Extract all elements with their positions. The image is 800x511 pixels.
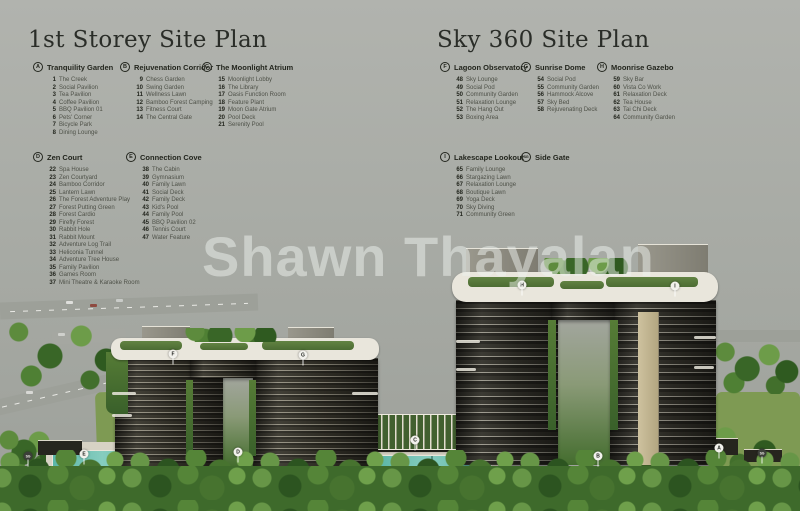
item-label: Social Pod [466,85,495,93]
item-label: Bamboo Corridor [59,182,105,190]
item-number: 14 [134,115,143,123]
item-number: 1 [47,77,56,85]
legend-item: 33Heliconia Tunnel [47,250,140,258]
item-number: 70 [454,205,463,213]
item-number: 60 [611,85,620,93]
item-label: Firefly Forest [59,220,94,228]
legend-item: 2Social Pavilion [47,85,113,93]
legend-item: 15Moonlight Lobby [216,77,293,85]
item-label: The Library [228,85,258,93]
item-number: 58 [535,107,544,115]
item-label: Relaxation Lounge [466,100,516,108]
legend-item: 35Family Pavilion [47,265,140,273]
legend-section-C: CThe Moonlight Atrium15Moonlight Lobby16… [202,62,293,130]
section-letter-badge: G [521,62,531,72]
item-label: Oasis Function Room [228,92,286,100]
item-number: 26 [47,197,56,205]
legend-section-G: GSunrise Dome54Social Pod55Community Gar… [521,62,599,115]
legend-item: 60Vista Co Work [611,85,675,93]
section-letter-badge: E [126,152,136,162]
legend-item: 66Stargazing Lawn [454,175,524,183]
item-number: 10 [134,85,143,93]
legend-item: 1The Creek [47,77,113,85]
item-number: 39 [140,175,149,183]
section-items: 48Sky Lounge49Social Pod50Community Gard… [454,77,527,122]
legend-item: 50Community Garden [454,92,527,100]
item-number: 46 [140,227,149,235]
item-label: Stargazing Lawn [466,175,511,183]
item-number: 42 [140,197,149,205]
legend-item: 19Moon Gate Atrium [216,107,293,115]
legend-item: 59Sky Bar [611,77,675,85]
legend-item: 51Relaxation Lounge [454,100,527,108]
section-name: Lagoon Observatory [454,63,527,72]
section-items: 1The Creek2Social Pavilion3Tea Pavilion4… [47,77,113,137]
section-letter-badge: F [440,62,450,72]
legend-item: 32Adventure Log Trail [47,242,140,250]
legend-item: 20Pool Deck [216,115,293,123]
item-number: 17 [216,92,225,100]
item-number: 40 [140,182,149,190]
item-number: 2 [47,85,56,93]
section-header: ATranquility Garden [33,62,113,72]
item-label: Pool Deck [228,115,255,123]
legend-item: 37Mini Theatre & Karaoke Room [47,280,140,288]
site-plan-page: FGHIEDCBASGSG Shawn Thayalan 1st Storey … [0,0,800,511]
item-number: 65 [454,167,463,175]
legend-item: 47Water Feature [140,235,202,243]
legend-item: 7Bicycle Park [47,122,113,130]
item-label: Social Pod [547,77,576,85]
item-number: 56 [535,92,544,100]
section-name: Sunrise Dome [535,63,585,72]
item-number: 61 [611,92,620,100]
item-number: 71 [454,212,463,220]
item-number: 5 [47,107,56,115]
item-label: BBQ Pavilion 01 [59,107,103,115]
item-number: 25 [47,190,56,198]
item-number: 12 [134,100,143,108]
item-number: 66 [454,175,463,183]
item-label: Games Room [59,272,96,280]
legend-section-A: ATranquility Garden1The Creek2Social Pav… [33,62,113,137]
section-letter-badge: A [33,62,43,72]
legend-item: 43Kid's Pool [140,205,202,213]
legend-item: 45BBQ Pavilion 02 [140,220,202,228]
legend-section-I: ILakescape Lookout65Family Lounge66Starg… [440,152,524,220]
item-number: 44 [140,212,149,220]
item-number: 16 [216,85,225,93]
legend-section-SG: SGSide Gate [521,152,570,167]
item-label: Moon Gate Atrium [228,107,276,115]
item-label: Relaxation Lounge [466,182,516,190]
legend-item: 64Community Garden [611,115,675,123]
legend-item: 8Dining Lounge [47,130,113,138]
item-number: 69 [454,197,463,205]
item-label: Rabbit Hole [59,227,90,235]
section-header: HMoonrise Gazebo [597,62,675,72]
legend-item: 36Games Room [47,272,140,280]
legend-item: 52The Hang Out [454,107,527,115]
legend-item: 70Sky Diving [454,205,524,213]
legend-item: 18Feature Plant [216,100,293,108]
item-label: Zen Courtyard [59,175,97,183]
item-label: Forest Putting Green [59,205,115,213]
item-number: 63 [611,107,620,115]
legend-item: 46Tennis Court [140,227,202,235]
item-number: 64 [611,115,620,123]
item-label: Family Lawn [152,182,186,190]
item-number: 59 [611,77,620,85]
item-label: Bicycle Park [59,122,92,130]
section-name: The Moonlight Atrium [216,63,293,72]
item-number: 41 [140,190,149,198]
section-letter-badge: SG [521,152,531,162]
item-number: 29 [47,220,56,228]
plan-title-2: Sky 360 Site Plan [437,27,650,53]
legend-item: 61Relaxation Deck [611,92,675,100]
item-label: Boxing Area [466,115,498,123]
item-number: 45 [140,220,149,228]
item-number: 7 [47,122,56,130]
section-header: EConnection Cove [126,152,202,162]
legend-item: 42Family Deck [140,197,202,205]
item-number: 33 [47,250,56,258]
item-label: Community Garden [547,85,599,93]
legend-item: 57Sky Bed [535,100,599,108]
legend-item: 16The Library [216,85,293,93]
item-number: 23 [47,175,56,183]
item-label: Coffee Pavilion [59,100,99,108]
item-label: The Hang Out [466,107,504,115]
item-label: Relaxation Deck [623,92,667,100]
item-number: 31 [47,235,56,243]
item-label: The Cabin [152,167,180,175]
legend-item: 48Sky Lounge [454,77,527,85]
item-number: 3 [47,92,56,100]
item-number: 13 [134,107,143,115]
item-label: Tennis Court [152,227,186,235]
item-label: The Central Gate [146,115,192,123]
item-number: 9 [134,77,143,85]
legend-item: 71Community Green [454,212,524,220]
legend-section-B: BRejuvenation Corridor9Chess Garden10Swi… [120,62,213,122]
item-label: Yoga Deck [466,197,495,205]
item-number: 52 [454,107,463,115]
item-label: Family Pavilion [59,265,99,273]
item-number: 62 [611,100,620,108]
legend-item: 41Social Deck [140,190,202,198]
section-letter-badge: B [120,62,130,72]
item-number: 67 [454,182,463,190]
item-number: 4 [47,100,56,108]
item-label: Social Pavilion [59,85,98,93]
item-label: Sky Diving [466,205,494,213]
section-name: Tranquility Garden [47,63,113,72]
section-header: ILakescape Lookout [440,152,524,162]
legend-item: 44Family Pool [140,212,202,220]
legend-item: 65Family Lounge [454,167,524,175]
item-number: 21 [216,122,225,130]
item-number: 50 [454,92,463,100]
section-name: Moonrise Gazebo [611,63,674,72]
item-label: Rabbit Mount [59,235,95,243]
item-label: Hammock Alcove [547,92,593,100]
item-label: Tai Chi Deck [623,107,657,115]
item-number: 53 [454,115,463,123]
section-items: 15Moonlight Lobby16The Library17Oasis Fu… [216,77,293,130]
section-name: Lakescape Lookout [454,153,524,162]
section-letter-badge: C [202,62,212,72]
item-label: Pets' Corner [59,115,92,123]
item-number: 30 [47,227,56,235]
item-number: 68 [454,190,463,198]
section-name: Side Gate [535,153,570,162]
item-label: Social Deck [152,190,184,198]
legend-item: 5BBQ Pavilion 01 [47,107,113,115]
item-label: Sky Bed [547,100,569,108]
item-label: Rejuvenating Deck [547,107,597,115]
item-label: Kid's Pool [152,205,179,213]
legend-item: 49Social Pod [454,85,527,93]
legend-item: 55Community Garden [535,85,599,93]
legend-item: 38The Cabin [140,167,202,175]
item-number: 32 [47,242,56,250]
item-label: Heliconia Tunnel [59,250,103,258]
item-number: 48 [454,77,463,85]
item-label: Gymnasium [152,175,184,183]
item-label: The Creek [59,77,87,85]
legend-item: 68Boutique Lawn [454,190,524,198]
item-number: 36 [47,272,56,280]
item-number: 47 [140,235,149,243]
item-label: Sky Bar [623,77,644,85]
item-number: 11 [134,92,143,100]
section-items: 38The Cabin39Gymnasium40Family Lawn41Soc… [140,167,202,242]
legend-item: 4Coffee Pavilion [47,100,113,108]
legend-item: 58Rejuvenating Deck [535,107,599,115]
item-label: Wellness Lawn [146,92,186,100]
item-label: Adventure Log Trail [59,242,111,250]
item-label: Fitness Court [146,107,182,115]
item-label: Family Lounge [466,167,505,175]
legend-item: 6Pets' Corner [47,115,113,123]
item-number: 37 [47,280,56,288]
item-label: Community Garden [466,92,518,100]
item-number: 15 [216,77,225,85]
item-number: 55 [535,85,544,93]
item-label: Water Feature [152,235,190,243]
section-letter-badge: D [33,152,43,162]
item-number: 8 [47,130,56,138]
legend-section-F: FLagoon Observatory48Sky Lounge49Social … [440,62,527,122]
legend-item: 17Oasis Function Room [216,92,293,100]
item-label: Dining Lounge [59,130,98,138]
item-number: 51 [454,100,463,108]
item-label: Community Garden [623,115,675,123]
item-number: 57 [535,100,544,108]
item-label: Adventure Tree House [59,257,119,265]
item-number: 34 [47,257,56,265]
legend-item: 34Adventure Tree House [47,257,140,265]
legend-item: 67Relaxation Lounge [454,182,524,190]
item-label: Spa House [59,167,89,175]
section-header: DZen Court [33,152,140,162]
section-items: 59Sky Bar60Vista Co Work61Relaxation Dec… [611,77,675,122]
legend-section-D: DZen Court22Spa House23Zen Courtyard24Ba… [33,152,140,287]
item-number: 24 [47,182,56,190]
item-label: Sky Lounge [466,77,498,85]
item-label: Family Deck [152,197,185,205]
section-items: 54Social Pod55Community Garden56Hammock … [535,77,599,115]
legend-item: 63Tai Chi Deck [611,107,675,115]
section-name: Zen Court [47,153,82,162]
legend-item: 3Tea Pavilion [47,92,113,100]
legend-root: 1st Storey Site PlanATranquility Garden1… [0,0,800,511]
legend-item: 69Yoga Deck [454,197,524,205]
item-label: Chess Garden [146,77,185,85]
item-label: Vista Co Work [623,85,661,93]
legend-item: 54Social Pod [535,77,599,85]
item-label: Boutique Lawn [466,190,506,198]
section-header: CThe Moonlight Atrium [202,62,293,72]
item-label: Swing Garden [146,85,184,93]
item-label: The Forest Adventure Play [59,197,130,205]
item-label: Community Green [466,212,515,220]
item-number: 35 [47,265,56,273]
item-label: Forest Cardio [59,212,95,220]
item-number: 28 [47,212,56,220]
section-letter-badge: I [440,152,450,162]
item-number: 27 [47,205,56,213]
item-number: 22 [47,167,56,175]
section-header: SGSide Gate [521,152,570,162]
item-label: BBQ Pavilion 02 [152,220,196,228]
item-label: Lantern Lawn [59,190,95,198]
legend-item: 53Boxing Area [454,115,527,123]
item-label: Family Pool [152,212,183,220]
section-letter-badge: H [597,62,607,72]
legend-item: 40Family Lawn [140,182,202,190]
item-label: Moonlight Lobby [228,77,272,85]
item-label: Tea Pavilion [59,92,91,100]
item-number: 38 [140,167,149,175]
item-number: 43 [140,205,149,213]
item-label: Feature Plant [228,100,264,108]
plan-title-1: 1st Storey Site Plan [28,27,267,53]
item-label: Serenity Pool [228,122,264,130]
section-header: BRejuvenation Corridor [120,62,213,72]
section-header: GSunrise Dome [521,62,599,72]
legend-item: 21Serenity Pool [216,122,293,130]
item-number: 6 [47,115,56,123]
item-number: 19 [216,107,225,115]
item-label: Mini Theatre & Karaoke Room [59,280,140,288]
section-items: 65Family Lounge66Stargazing Lawn67Relaxa… [454,167,524,220]
legend-section-E: EConnection Cove38The Cabin39Gymnasium40… [126,152,202,242]
section-name: Connection Cove [140,153,202,162]
item-number: 49 [454,85,463,93]
item-label: Tea House [623,100,652,108]
legend-item: 62Tea House [611,100,675,108]
section-header: FLagoon Observatory [440,62,527,72]
item-number: 18 [216,100,225,108]
item-number: 54 [535,77,544,85]
item-number: 20 [216,115,225,123]
legend-item: 56Hammock Alcove [535,92,599,100]
legend-item: 39Gymnasium [140,175,202,183]
legend-section-H: HMoonrise Gazebo59Sky Bar60Vista Co Work… [597,62,675,122]
